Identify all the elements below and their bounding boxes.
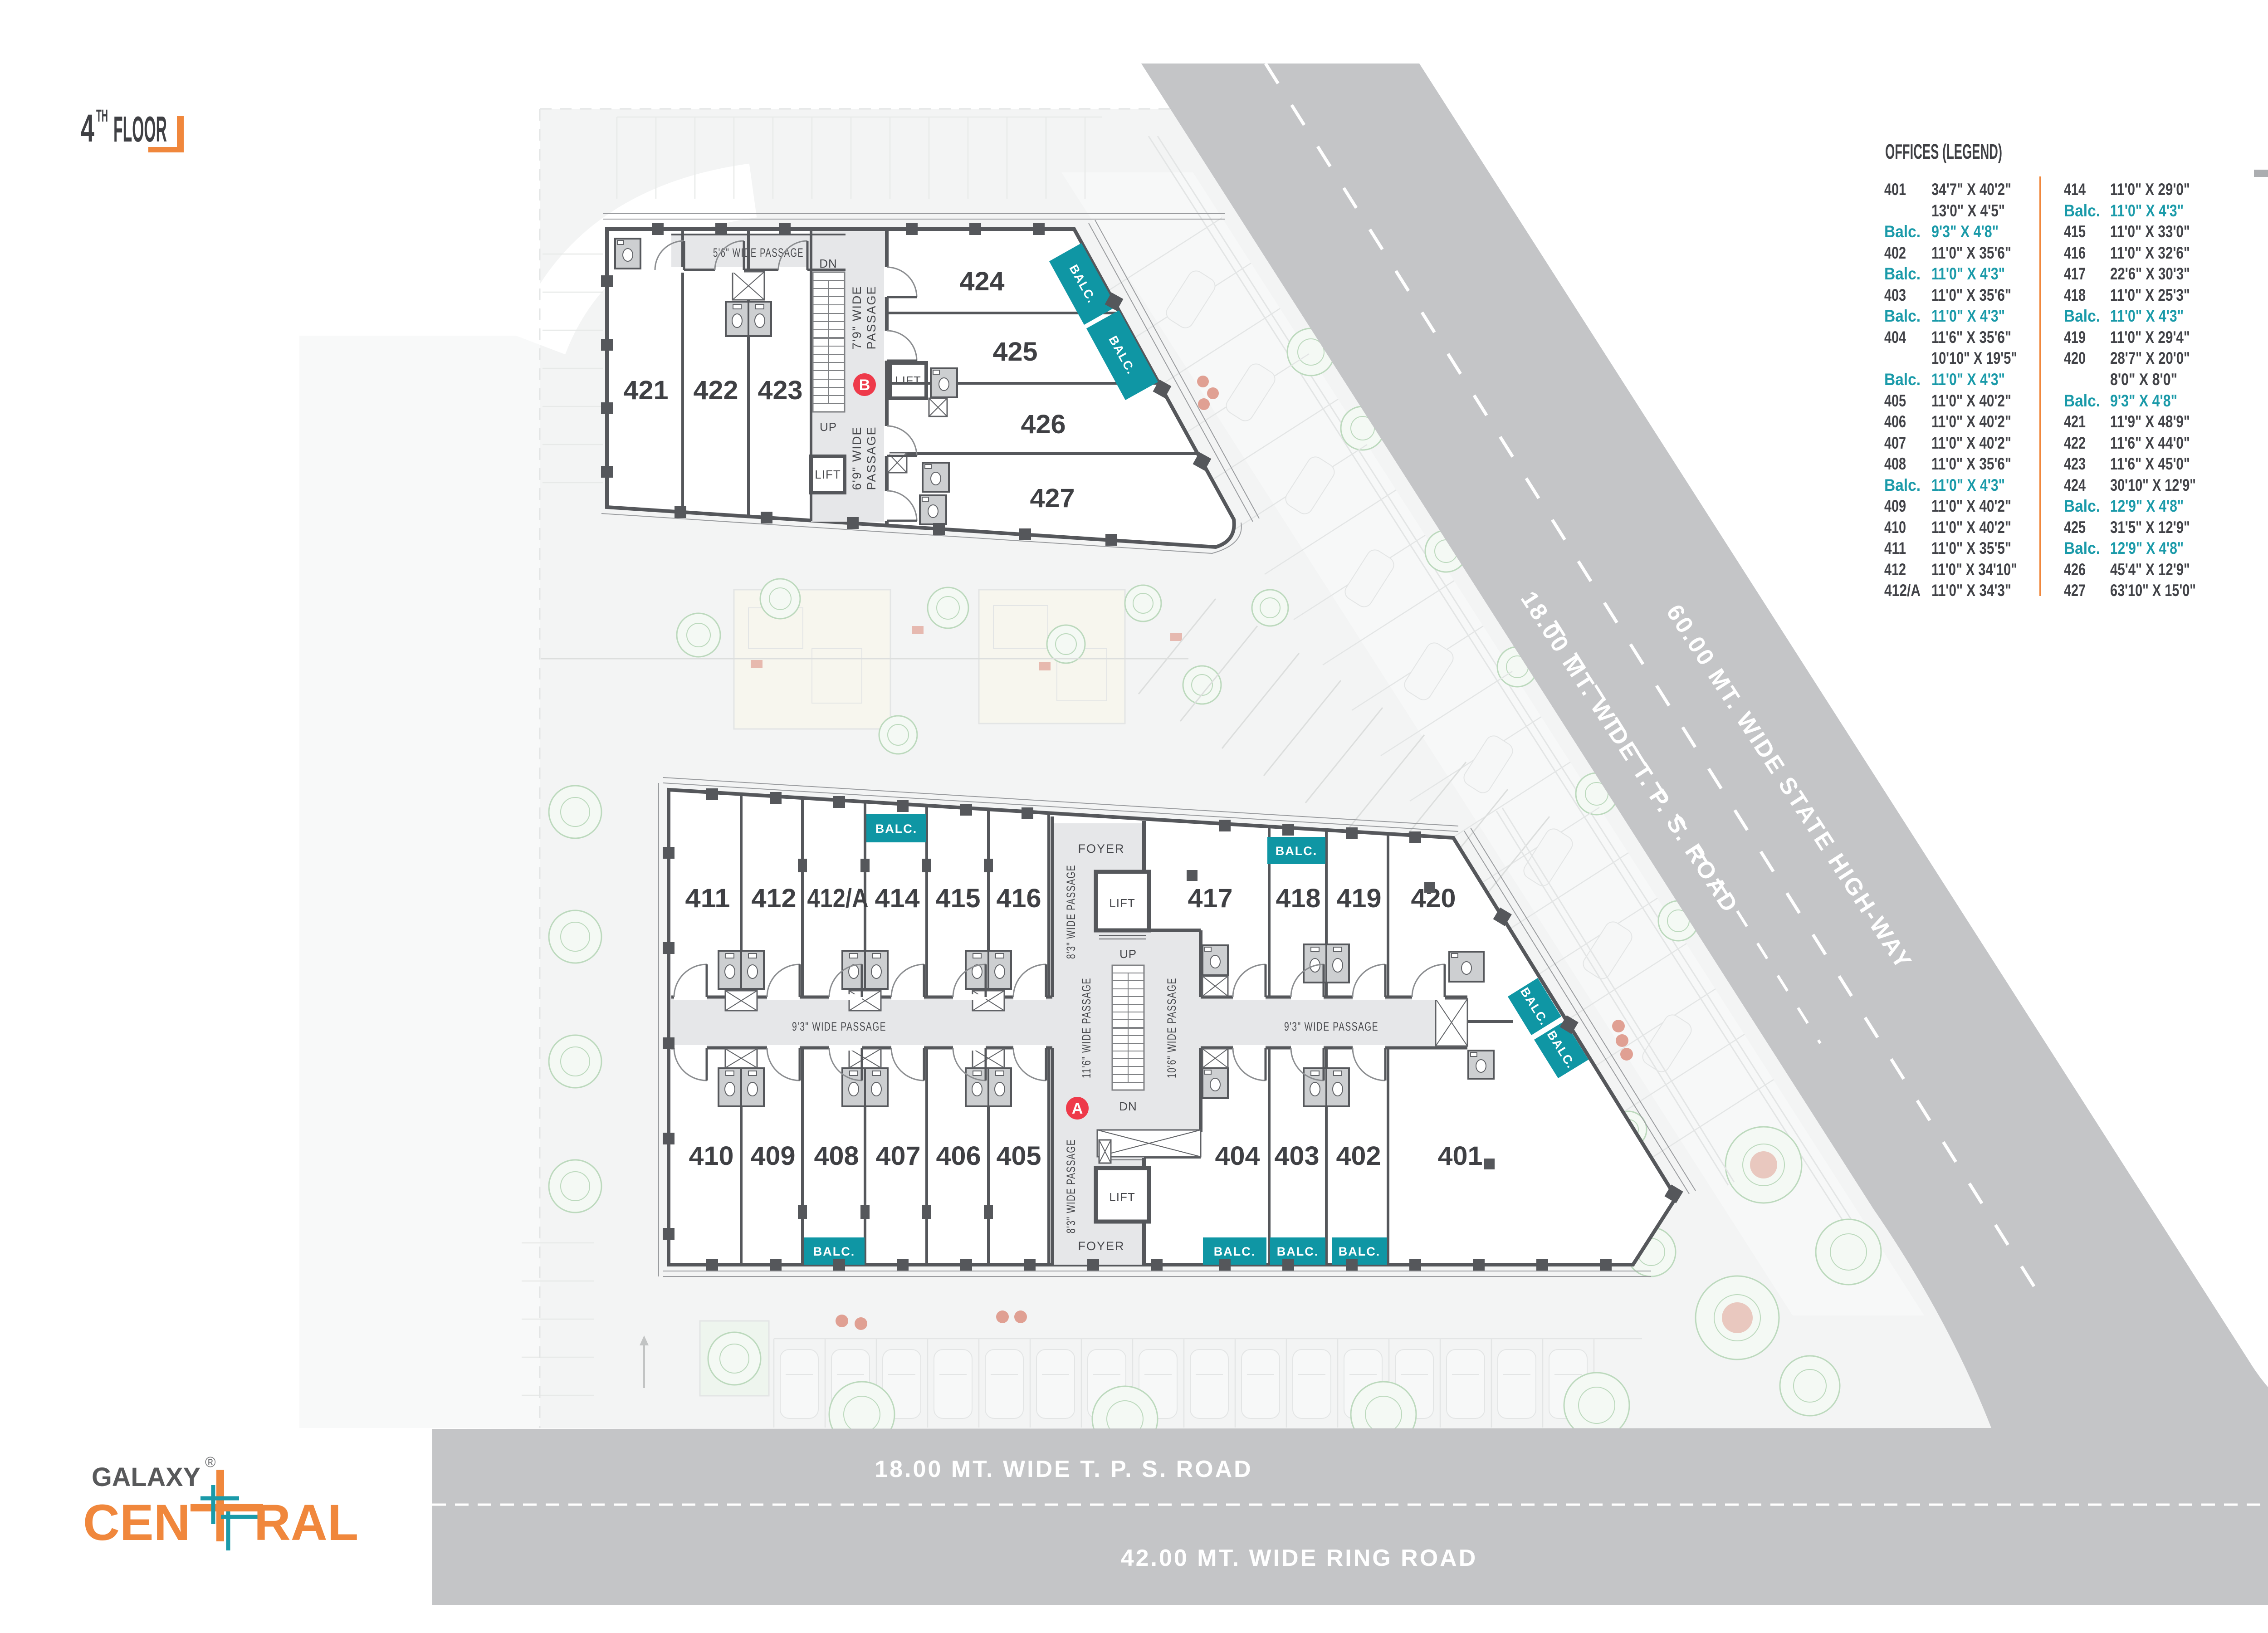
svg-text:®: ®	[205, 1454, 216, 1470]
svg-text:405: 405	[1884, 391, 1906, 410]
svg-text:11'0" X 34'3": 11'0" X 34'3"	[1931, 581, 2011, 600]
svg-text:412: 412	[752, 884, 797, 913]
svg-text:Balc.: Balc.	[1884, 307, 1921, 325]
svg-text:427: 427	[1030, 484, 1075, 513]
svg-text:414: 414	[875, 884, 920, 913]
svg-text:LIFT: LIFT	[895, 374, 921, 387]
svg-text:GALAXY: GALAXY	[92, 1462, 200, 1492]
svg-text:CEN: CEN	[83, 1494, 190, 1551]
svg-text:DN: DN	[819, 257, 837, 270]
svg-text:Balc.: Balc.	[2064, 391, 2100, 410]
svg-text:423: 423	[2064, 455, 2086, 473]
svg-text:419: 419	[2064, 328, 2086, 347]
svg-text:11'0" X 40'2": 11'0" X 40'2"	[1931, 434, 2011, 452]
svg-text:A: A	[1072, 1100, 1083, 1117]
svg-text:8'3" WIDE PASSAGE: 8'3" WIDE PASSAGE	[1064, 1139, 1078, 1233]
svg-text:411: 411	[1884, 539, 1906, 557]
svg-text:418: 418	[1276, 884, 1321, 913]
svg-text:11'0" X 4'3": 11'0" X 4'3"	[1931, 307, 2005, 325]
svg-text:421: 421	[624, 376, 669, 405]
svg-text:406: 406	[936, 1141, 981, 1171]
svg-text:421: 421	[2064, 412, 2086, 431]
svg-text:Balc.: Balc.	[1884, 370, 1921, 389]
svg-text:11'0" X 35'6": 11'0" X 35'6"	[1931, 244, 2011, 262]
svg-text:Balc.: Balc.	[1884, 476, 1921, 494]
svg-text:12'9" X 4'8": 12'9" X 4'8"	[2110, 497, 2184, 515]
svg-text:426: 426	[1021, 410, 1066, 439]
svg-text:403: 403	[1884, 286, 1906, 304]
svg-text:11'6" X 44'0": 11'6" X 44'0"	[2110, 434, 2190, 452]
svg-text:11'0" X 35'6": 11'0" X 35'6"	[1931, 455, 2011, 473]
svg-text:11'0" X 29'4": 11'0" X 29'4"	[2110, 328, 2190, 347]
svg-text:FOYER: FOYER	[1078, 842, 1124, 856]
svg-text:409: 409	[751, 1141, 796, 1171]
svg-text:UP: UP	[1119, 947, 1137, 961]
svg-text:401: 401	[1438, 1141, 1483, 1171]
svg-text:28'7" X 20'0": 28'7" X 20'0"	[2110, 349, 2190, 367]
svg-text:11'0" X 4'3": 11'0" X 4'3"	[1931, 370, 2005, 389]
svg-text:OFFICES (LEGEND): OFFICES (LEGEND)	[1885, 140, 2002, 163]
svg-text:9'3" WIDE PASSAGE: 9'3" WIDE PASSAGE	[1284, 1020, 1378, 1033]
svg-text:Balc.: Balc.	[2064, 201, 2100, 220]
svg-text:Balc.: Balc.	[1884, 264, 1921, 283]
svg-text:422: 422	[2064, 434, 2086, 452]
svg-text:407: 407	[1884, 434, 1906, 452]
svg-text:424: 424	[2064, 476, 2086, 494]
svg-text:11'0" X 4'3": 11'0" X 4'3"	[1931, 264, 2005, 283]
svg-text:9'3" X 4'8": 9'3" X 4'8"	[2110, 391, 2177, 410]
svg-text:BALC.: BALC.	[875, 822, 918, 836]
svg-text:6'9" WIDE: 6'9" WIDE	[850, 426, 864, 490]
svg-text:TH: TH	[96, 107, 108, 126]
svg-text:63'10" X 15'0": 63'10" X 15'0"	[2110, 581, 2196, 600]
svg-text:11'0" X 29'0": 11'0" X 29'0"	[2110, 180, 2190, 199]
svg-text:5'6" WIDE PASSAGE: 5'6" WIDE PASSAGE	[713, 246, 804, 259]
svg-text:LIFT: LIFT	[815, 468, 841, 481]
svg-text:11'0" X 4'3": 11'0" X 4'3"	[2110, 201, 2184, 220]
svg-text:11'0" X 40'2": 11'0" X 40'2"	[1931, 412, 2011, 431]
svg-text:417: 417	[1188, 884, 1233, 913]
svg-text:416: 416	[2064, 244, 2086, 262]
svg-text:404: 404	[1215, 1141, 1260, 1171]
svg-text:10'6" WIDE PASSAGE: 10'6" WIDE PASSAGE	[1165, 978, 1178, 1078]
svg-text:11'0" X 35'5": 11'0" X 35'5"	[1931, 539, 2011, 557]
svg-text:11'0" X 34'10": 11'0" X 34'10"	[1931, 560, 2017, 579]
svg-text:45'4" X 12'9": 45'4" X 12'9"	[2110, 560, 2190, 579]
svg-text:PASSAGE: PASSAGE	[865, 426, 878, 490]
svg-text:415: 415	[2064, 222, 2086, 241]
svg-text:FOYER: FOYER	[1078, 1239, 1124, 1253]
svg-text:427: 427	[2064, 581, 2086, 600]
svg-text:FLOOR: FLOOR	[113, 109, 167, 149]
svg-text:B: B	[859, 376, 870, 394]
svg-text:BALC.: BALC.	[1276, 844, 1318, 858]
svg-text:420: 420	[2064, 349, 2086, 367]
svg-text:424: 424	[960, 267, 1005, 296]
svg-text:11'0" X 4'3": 11'0" X 4'3"	[2110, 307, 2184, 325]
svg-text:13'0" X 4'5": 13'0" X 4'5"	[1931, 201, 2005, 220]
svg-text:11'6" WIDE PASSAGE: 11'6" WIDE PASSAGE	[1080, 978, 1093, 1078]
svg-text:410: 410	[1884, 518, 1906, 537]
svg-text:11'0" X 32'6": 11'0" X 32'6"	[2110, 244, 2190, 262]
svg-text:11'0" X 35'6": 11'0" X 35'6"	[1931, 286, 2011, 304]
svg-text:11'6" X 35'6": 11'6" X 35'6"	[1931, 328, 2011, 347]
svg-text:423: 423	[758, 376, 803, 405]
svg-text:RAL: RAL	[254, 1494, 358, 1551]
svg-text:416: 416	[997, 884, 1041, 913]
svg-text:425: 425	[993, 337, 1038, 367]
svg-text:412/A: 412/A	[1884, 581, 1921, 600]
svg-text:415: 415	[936, 884, 981, 913]
svg-text:BALC.: BALC.	[1214, 1245, 1256, 1258]
svg-text:426: 426	[2064, 560, 2086, 579]
svg-text:BALC.: BALC.	[1277, 1245, 1319, 1258]
svg-text:BALC.: BALC.	[813, 1245, 855, 1258]
svg-text:8'3" WIDE PASSAGE: 8'3" WIDE PASSAGE	[1064, 865, 1078, 959]
svg-text:Balc.: Balc.	[1884, 222, 1921, 241]
svg-text:7'9" WIDE: 7'9" WIDE	[850, 286, 864, 350]
svg-text:11'0" X 33'0": 11'0" X 33'0"	[2110, 222, 2190, 241]
svg-text:407: 407	[876, 1141, 921, 1171]
svg-text:10'10" X 19'5": 10'10" X 19'5"	[1931, 349, 2017, 367]
svg-text:406: 406	[1884, 412, 1906, 431]
svg-text:UP: UP	[820, 420, 837, 434]
svg-text:LIFT: LIFT	[1109, 1190, 1135, 1204]
svg-text:414: 414	[2064, 180, 2086, 199]
svg-text:30'10" X 12'9": 30'10" X 12'9"	[2110, 476, 2196, 494]
svg-text:11'0" X 40'2": 11'0" X 40'2"	[1931, 518, 2011, 537]
svg-text:417: 417	[2064, 264, 2086, 283]
svg-text:9'3" WIDE PASSAGE: 9'3" WIDE PASSAGE	[792, 1020, 886, 1033]
svg-text:11'9" X 48'9": 11'9" X 48'9"	[2110, 412, 2190, 431]
svg-text:Balc.: Balc.	[2064, 307, 2100, 325]
svg-text:403: 403	[1275, 1141, 1320, 1171]
svg-text:BALC.: BALC.	[1339, 1245, 1381, 1258]
svg-text:410: 410	[689, 1141, 734, 1171]
svg-text:408: 408	[1884, 455, 1906, 473]
svg-text:409: 409	[1884, 497, 1906, 515]
svg-text:18.00 MT. WIDE T. P. S. ROAD: 18.00 MT. WIDE T. P. S. ROAD	[875, 1456, 1252, 1482]
svg-text:422: 422	[694, 376, 738, 405]
svg-text:11'6" X 45'0": 11'6" X 45'0"	[2110, 455, 2190, 473]
svg-text:402: 402	[1336, 1141, 1381, 1171]
svg-text:Balc.: Balc.	[2064, 539, 2100, 557]
svg-text:408: 408	[814, 1141, 859, 1171]
svg-text:8'0" X 8'0": 8'0" X 8'0"	[2110, 370, 2177, 389]
svg-text:12'9" X 4'8": 12'9" X 4'8"	[2110, 539, 2184, 557]
svg-text:425: 425	[2064, 518, 2086, 537]
svg-text:42.00 MT. WIDE RING ROAD: 42.00 MT. WIDE RING ROAD	[1121, 1545, 1478, 1571]
svg-text:11'0" X 40'2": 11'0" X 40'2"	[1931, 391, 2011, 410]
svg-text:4: 4	[81, 107, 94, 150]
svg-text:402: 402	[1884, 244, 1906, 262]
svg-text:11'0" X 4'3": 11'0" X 4'3"	[1931, 476, 2005, 494]
svg-text:412/A: 412/A	[807, 884, 869, 913]
svg-text:22'6" X 30'3": 22'6" X 30'3"	[2110, 264, 2190, 283]
svg-text:9'3" X 4'8": 9'3" X 4'8"	[1931, 222, 1999, 241]
svg-text:11'0" X 40'2": 11'0" X 40'2"	[1931, 497, 2011, 515]
svg-text:401: 401	[1884, 180, 1906, 199]
svg-text:PASSAGE: PASSAGE	[865, 285, 878, 349]
svg-text:405: 405	[997, 1141, 1041, 1171]
svg-text:31'5" X 12'9": 31'5" X 12'9"	[2110, 518, 2190, 537]
svg-text:34'7" X 40'2": 34'7" X 40'2"	[1931, 180, 2011, 199]
svg-text:411: 411	[685, 884, 730, 913]
svg-text:418: 418	[2064, 286, 2086, 304]
svg-text:LIFT: LIFT	[1109, 896, 1135, 910]
svg-text:404: 404	[1884, 328, 1906, 347]
svg-text:419: 419	[1337, 884, 1382, 913]
svg-text:11'0" X 25'3": 11'0" X 25'3"	[2110, 286, 2190, 304]
svg-text:Balc.: Balc.	[2064, 497, 2100, 515]
svg-text:DN: DN	[1119, 1100, 1137, 1113]
svg-text:412: 412	[1884, 560, 1906, 579]
